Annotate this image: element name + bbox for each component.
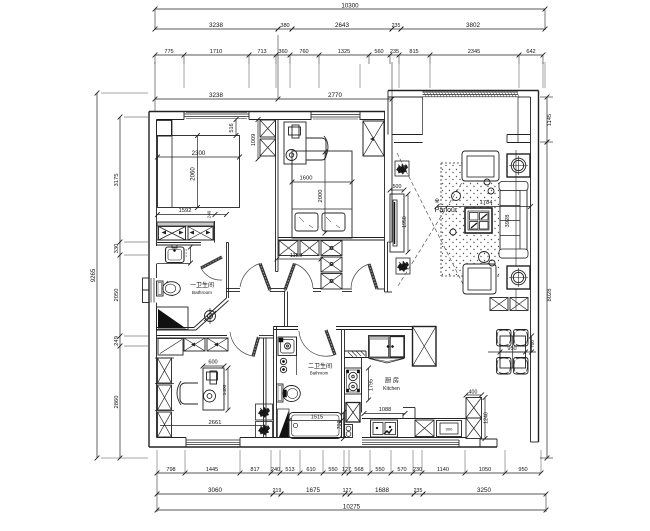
svg-text:3060: 3060	[208, 487, 223, 494]
svg-text:817: 817	[250, 467, 259, 473]
svg-text:一卫生间: 一卫生间	[190, 281, 214, 289]
svg-text:二卫生间: 二卫生间	[308, 362, 332, 370]
svg-text:570: 570	[397, 467, 406, 473]
svg-text:2661: 2661	[209, 420, 222, 426]
svg-text:1009: 1009	[251, 134, 257, 146]
svg-text:1675: 1675	[306, 487, 321, 494]
svg-text:360: 360	[278, 49, 287, 55]
svg-text:1240: 1240	[484, 412, 490, 424]
svg-text:600: 600	[208, 360, 217, 366]
svg-text:Bathroom: Bathroom	[310, 371, 329, 376]
svg-text:900: 900	[446, 427, 453, 432]
svg-text:1688: 1688	[375, 487, 390, 494]
svg-text:235: 235	[390, 49, 399, 55]
svg-text:9265: 9265	[91, 268, 97, 282]
svg-text:713: 713	[257, 49, 266, 55]
svg-text:1400: 1400	[222, 384, 228, 395]
svg-text:1325: 1325	[338, 49, 350, 55]
svg-text:2000: 2000	[318, 190, 324, 203]
svg-text:3238: 3238	[209, 22, 224, 29]
svg-text:550: 550	[375, 467, 384, 473]
svg-text:Bathroom: Bathroom	[192, 290, 212, 295]
svg-text:※: ※	[434, 198, 440, 205]
svg-text:1445: 1445	[206, 467, 218, 473]
svg-text:550: 550	[328, 467, 337, 473]
svg-text:513: 513	[285, 467, 294, 473]
svg-text:219: 219	[273, 488, 282, 494]
svg-text:127: 127	[343, 488, 352, 494]
svg-text:10300: 10300	[341, 2, 359, 9]
svg-text:2770: 2770	[328, 92, 343, 99]
svg-text:3928: 3928	[505, 215, 511, 228]
svg-text:240: 240	[271, 467, 280, 473]
svg-text:2300: 2300	[192, 150, 206, 157]
svg-text:950: 950	[518, 467, 527, 473]
svg-text:1600: 1600	[300, 176, 313, 182]
svg-text:610: 610	[306, 467, 315, 473]
svg-text:1795: 1795	[369, 379, 375, 391]
svg-text:700: 700	[530, 340, 535, 348]
svg-text:775: 775	[164, 49, 173, 55]
svg-text:Kitchen: Kitchen	[383, 386, 400, 392]
svg-text:3238: 3238	[209, 92, 224, 99]
svg-text:127: 127	[342, 467, 351, 473]
svg-text:3175: 3175	[114, 174, 120, 187]
svg-text:Parlour: Parlour	[435, 207, 458, 214]
svg-text:815: 815	[409, 49, 418, 55]
svg-text:2643: 2643	[335, 22, 350, 29]
svg-text:1592: 1592	[179, 208, 192, 214]
svg-text:249: 249	[114, 336, 120, 346]
svg-text:798: 798	[166, 467, 175, 473]
svg-text:1515: 1515	[311, 415, 323, 421]
svg-text:3250: 3250	[477, 487, 492, 494]
svg-text:380: 380	[280, 23, 289, 29]
svg-text:230: 230	[413, 467, 422, 473]
svg-text:500: 500	[393, 184, 402, 190]
svg-text:235: 235	[392, 23, 401, 29]
svg-text:950: 950	[507, 346, 516, 352]
svg-text:2860: 2860	[114, 396, 120, 409]
svg-text:2050: 2050	[114, 289, 120, 302]
svg-text:1145: 1145	[547, 114, 553, 126]
svg-text:568: 568	[354, 467, 363, 473]
svg-text:2060: 2060	[191, 167, 197, 181]
svg-text:10275: 10275	[343, 503, 361, 510]
svg-text:560: 560	[374, 49, 383, 55]
svg-text:700: 700	[337, 421, 343, 430]
svg-text:3802: 3802	[466, 22, 481, 29]
svg-text:8028: 8028	[547, 289, 553, 302]
svg-text:760: 760	[299, 49, 308, 55]
svg-text:2345: 2345	[468, 49, 480, 55]
svg-text:330: 330	[114, 244, 120, 254]
svg-text:516: 516	[229, 123, 235, 132]
svg-text:400: 400	[469, 390, 478, 396]
svg-text:240: 240	[207, 210, 212, 218]
svg-text:1784: 1784	[480, 200, 494, 206]
svg-text:厨 房: 厨 房	[385, 377, 399, 385]
svg-text:235: 235	[414, 488, 423, 494]
svg-text:1140: 1140	[437, 467, 449, 473]
svg-text:1150: 1150	[290, 253, 302, 259]
svg-text:1050: 1050	[479, 467, 491, 473]
svg-text:1950: 1950	[402, 216, 408, 228]
svg-text:642: 642	[526, 49, 535, 55]
svg-text:1710: 1710	[210, 49, 222, 55]
svg-text:1088: 1088	[379, 407, 391, 413]
